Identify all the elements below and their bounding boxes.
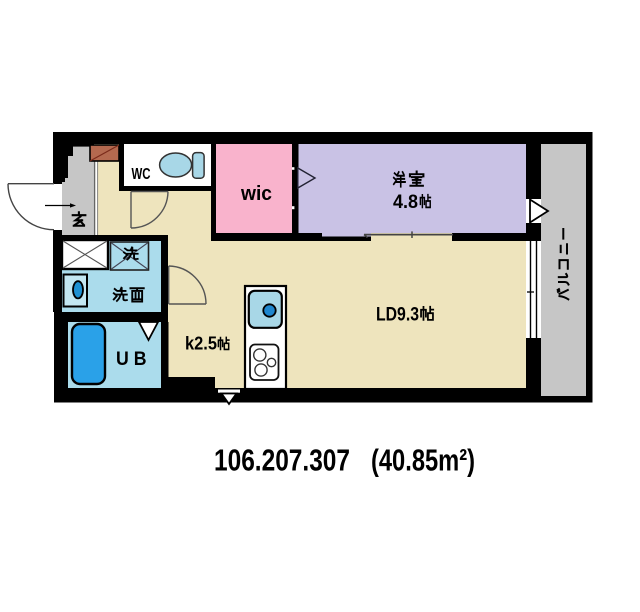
- svg-text:wic: wic: [240, 183, 272, 205]
- svg-text:4.8: 4.8: [393, 191, 418, 213]
- svg-text:U B: U B: [116, 349, 147, 370]
- svg-text:LD9.3: LD9.3: [376, 304, 419, 326]
- svg-text:k2.5: k2.5: [185, 334, 217, 354]
- svg-text:(40.85m²): (40.85m²): [371, 443, 475, 478]
- svg-text:WC: WC: [132, 166, 151, 183]
- svg-text:106.207.307: 106.207.307: [214, 443, 350, 478]
